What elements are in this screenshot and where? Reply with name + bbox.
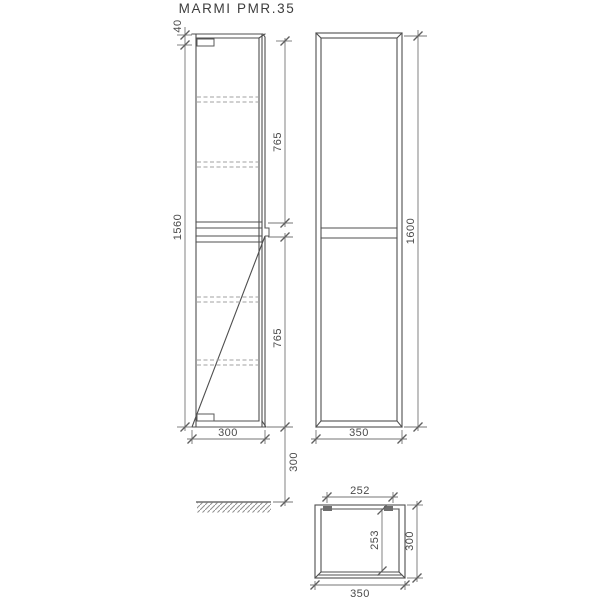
door-gap-notch (265, 228, 269, 236)
dim-upper-section-label: 765 (272, 132, 284, 152)
front-view-outline (316, 33, 402, 427)
dim-overall-width: 350 (311, 427, 407, 444)
dim-plan-width-label: 350 (350, 588, 370, 600)
plan-view (315, 505, 405, 578)
drawing-title: MARMI PMR.35 (179, 1, 296, 16)
dim-floor-clearance-label: 300 (288, 452, 300, 472)
front-miter-tr (397, 33, 402, 38)
front-view (316, 33, 402, 427)
front-door-panel (321, 38, 397, 421)
dim-lower-section: 765 (267, 233, 293, 432)
dim-inner-depth-label: 253 (369, 530, 381, 550)
drawing-canvas: MARMI PMR.35 (0, 0, 600, 600)
side-view-outline (192, 34, 265, 427)
plan-view-outline (315, 505, 405, 578)
front-miter-bl (316, 421, 321, 427)
dim-plan-width: 350 (310, 581, 410, 600)
side-view (192, 34, 269, 427)
dim-overall-height-label: 1600 (405, 218, 417, 244)
dim-inner-depth: 253 (369, 506, 387, 576)
dim-lower-section-label: 765 (272, 328, 284, 348)
dim-depth-label: 300 (218, 427, 238, 439)
dim-plan-depth: 300 (404, 501, 423, 583)
middle-shelf (196, 222, 269, 242)
wall-bracket-top (197, 39, 214, 46)
dim-overall-width-label: 350 (349, 427, 369, 439)
wall-bracket-bottom (197, 414, 214, 421)
technical-drawing-sheet: MARMI PMR.35 (0, 0, 600, 600)
floor-hatch (197, 503, 271, 513)
front-miter-tl (316, 33, 321, 38)
dim-top-panel-and-carcass-height: 40 1560 (172, 19, 192, 431)
dim-inner-width: 252 (322, 485, 398, 503)
dim-overall-height: 1600 (404, 30, 427, 432)
dim-upper-section: 765 (268, 37, 293, 228)
dim-floor-clearance: 300 (273, 427, 300, 507)
dim-carcass-height-label: 1560 (172, 214, 184, 240)
adjustable-shelves (197, 97, 259, 365)
dim-inner-width-label: 252 (350, 485, 370, 497)
dim-depth: 300 (187, 427, 270, 444)
dim-top-panel-label: 40 (172, 19, 184, 32)
plan-bracket-left (323, 506, 332, 511)
dim-plan-depth-label: 300 (404, 531, 416, 551)
floor (196, 502, 271, 513)
front-miter-br (397, 421, 402, 427)
